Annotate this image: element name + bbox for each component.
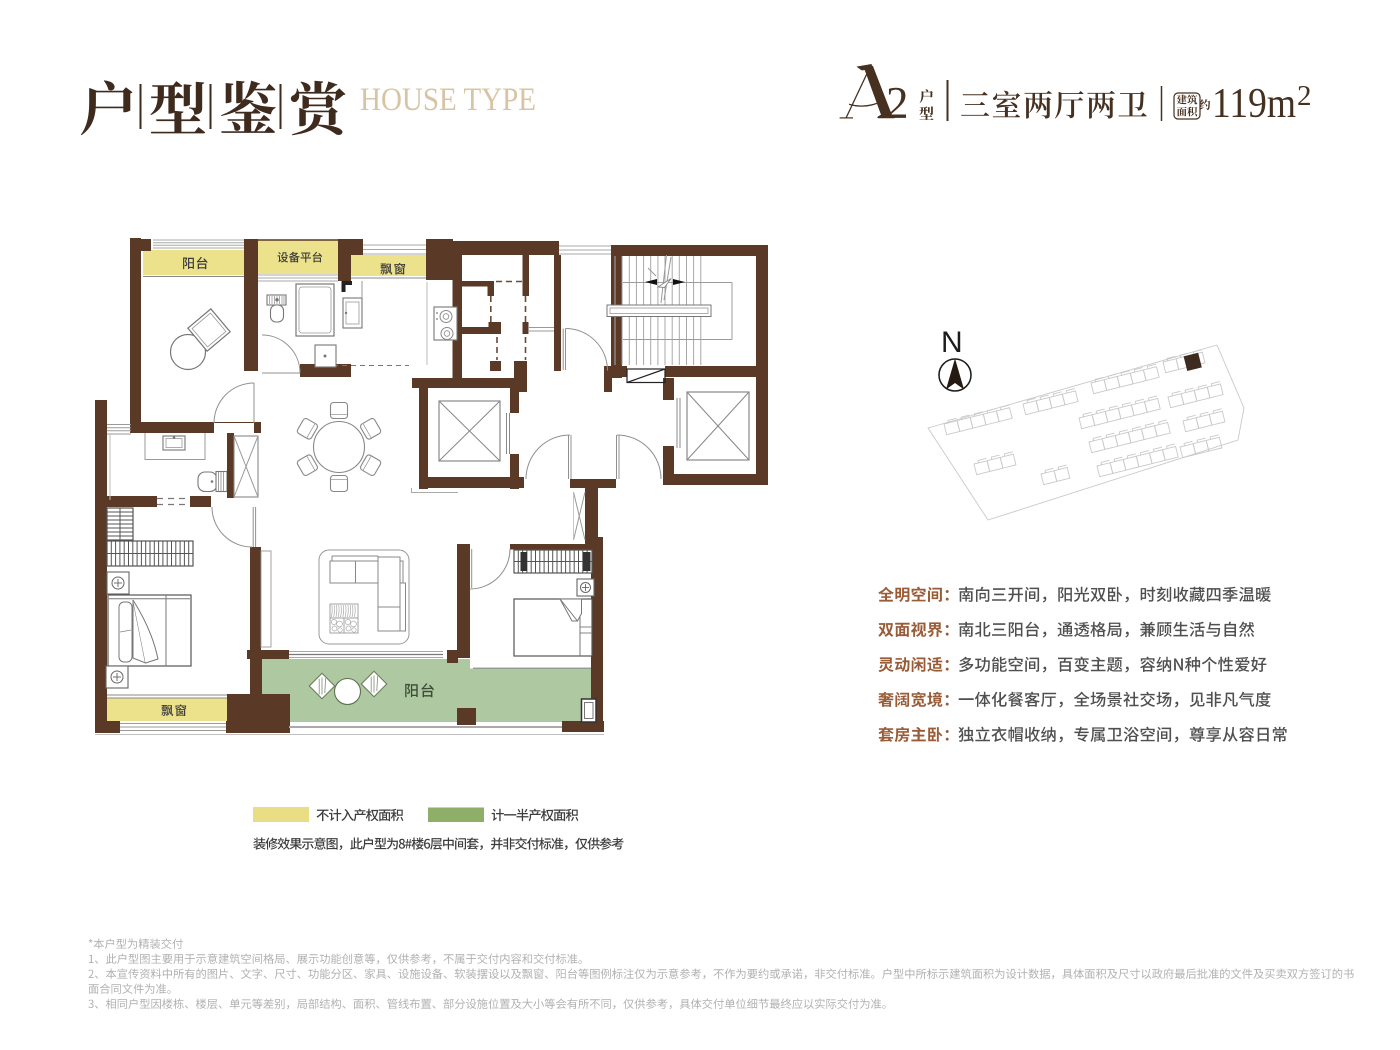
svg-text:2: 2: [886, 78, 909, 128]
svg-text:HOUSE TYPE: HOUSE TYPE: [360, 82, 536, 118]
svg-text:2: 2: [1297, 80, 1312, 112]
svg-text:119m: 119m: [1212, 81, 1296, 127]
svg-text:N: N: [941, 326, 963, 359]
